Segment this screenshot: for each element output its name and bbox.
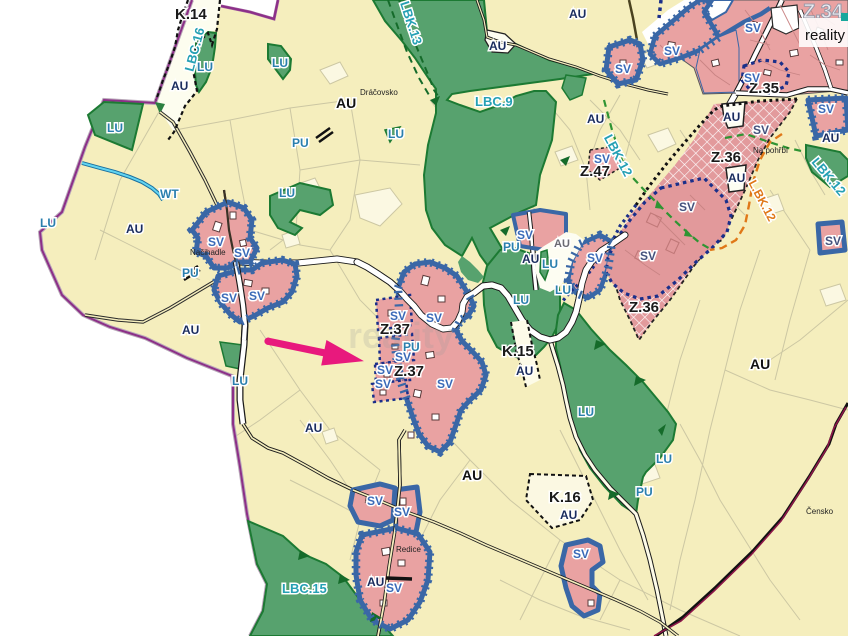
svg-text:K.14: K.14 xyxy=(175,6,207,23)
svg-text:Z.37: Z.37 xyxy=(394,363,424,380)
svg-text:SV: SV xyxy=(744,71,760,85)
svg-text:PU: PU xyxy=(503,240,520,254)
svg-text:AU: AU xyxy=(554,238,570,250)
svg-text:WT: WT xyxy=(160,187,179,201)
svg-text:LBC.15: LBC.15 xyxy=(282,581,327,596)
svg-text:AU: AU xyxy=(522,252,539,266)
svg-text:AU: AU xyxy=(336,95,356,111)
svg-text:PU: PU xyxy=(636,485,653,499)
svg-text:SV: SV xyxy=(587,251,603,265)
svg-text:SV: SV xyxy=(386,581,402,595)
svg-text:LU: LU xyxy=(542,257,558,271)
svg-text:LU: LU xyxy=(40,216,56,230)
svg-text:Čensko: Čensko xyxy=(806,507,834,516)
svg-text:LU: LU xyxy=(578,405,594,419)
svg-text:SV: SV xyxy=(221,291,237,305)
svg-text:Z.37: Z.37 xyxy=(380,321,410,338)
svg-text:LU: LU xyxy=(197,60,213,74)
svg-text:LU: LU xyxy=(107,121,123,135)
svg-text:PU: PU xyxy=(182,266,199,280)
svg-text:LU: LU xyxy=(513,293,529,307)
svg-text:AU: AU xyxy=(126,222,143,236)
svg-text:SV: SV xyxy=(573,547,589,561)
svg-text:AU: AU xyxy=(516,364,533,378)
svg-text:SV: SV xyxy=(377,363,393,377)
svg-text:AU: AU xyxy=(723,110,740,124)
svg-text:LU: LU xyxy=(656,452,672,466)
svg-text:AU: AU xyxy=(569,7,586,21)
svg-text:Z.36: Z.36 xyxy=(629,299,659,316)
svg-text:Načihadle: Načihadle xyxy=(190,248,226,257)
svg-text:AU: AU xyxy=(305,421,322,435)
svg-text:K.15: K.15 xyxy=(502,343,534,360)
svg-text:SV: SV xyxy=(818,102,834,116)
svg-text:LBC.9: LBC.9 xyxy=(475,94,513,109)
svg-text:SV: SV xyxy=(679,200,695,214)
svg-text:SV: SV xyxy=(664,44,680,58)
svg-text:SV: SV xyxy=(390,309,406,323)
svg-text:LU: LU xyxy=(279,186,295,200)
svg-text:SV: SV xyxy=(249,289,265,303)
svg-text:SV: SV xyxy=(615,62,631,76)
svg-text:SV: SV xyxy=(594,152,610,166)
svg-text:AU: AU xyxy=(750,356,770,372)
svg-text:SV: SV xyxy=(437,377,453,391)
svg-text:AU: AU xyxy=(560,508,577,522)
svg-text:SV: SV xyxy=(640,249,656,263)
svg-text:SV: SV xyxy=(234,246,250,260)
svg-text:SV: SV xyxy=(426,311,442,325)
svg-text:reality: reality xyxy=(805,27,846,44)
svg-text:AU: AU xyxy=(489,39,506,53)
svg-text:K.16: K.16 xyxy=(549,489,581,506)
svg-text:AU: AU xyxy=(587,112,604,126)
svg-text:PU: PU xyxy=(403,340,420,354)
svg-text:Z.36: Z.36 xyxy=(711,149,741,166)
svg-text:SV: SV xyxy=(367,494,383,508)
svg-text:SV: SV xyxy=(745,21,761,35)
svg-text:Redice: Redice xyxy=(396,545,421,554)
svg-text:AU: AU xyxy=(182,323,199,337)
svg-text:PU: PU xyxy=(292,136,309,150)
svg-text:LU: LU xyxy=(388,127,404,141)
svg-text:AU: AU xyxy=(462,467,482,483)
svg-text:SV: SV xyxy=(375,377,391,391)
svg-text:SV: SV xyxy=(753,123,769,137)
svg-text:Dráčovsko: Dráčovsko xyxy=(360,88,398,97)
svg-text:Na pohřbí: Na pohřbí xyxy=(753,146,789,155)
svg-text:AU: AU xyxy=(367,575,384,589)
svg-text:AU: AU xyxy=(171,79,188,93)
svg-text:LU: LU xyxy=(555,283,571,297)
svg-text:SV: SV xyxy=(208,235,224,249)
svg-text:AU: AU xyxy=(822,131,839,145)
svg-text:AU: AU xyxy=(728,171,745,185)
svg-text:LU: LU xyxy=(272,56,288,70)
svg-text:SV: SV xyxy=(394,505,410,519)
svg-text:SV: SV xyxy=(825,234,841,248)
svg-text:LU: LU xyxy=(232,374,248,388)
